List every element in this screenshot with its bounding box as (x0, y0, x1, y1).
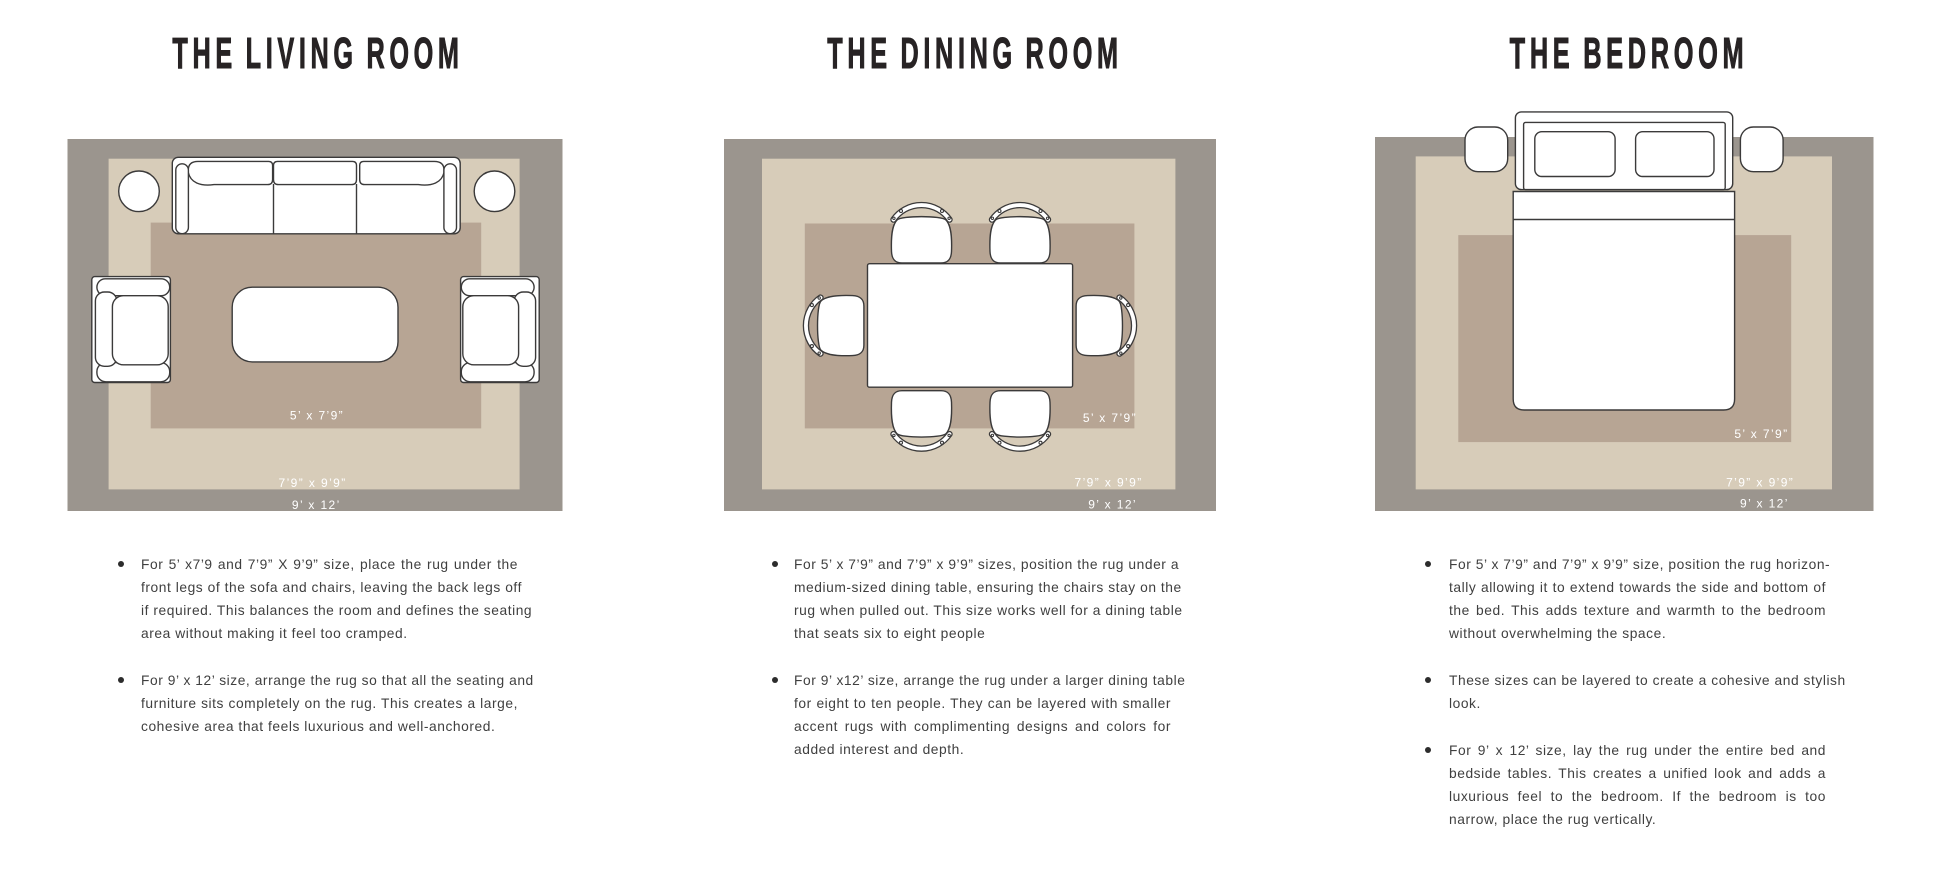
svg-text:9’ x 12’: 9’ x 12’ (1088, 497, 1137, 511)
svg-text:9’ x 12’: 9’ x 12’ (292, 498, 341, 512)
svg-text:7’9” x 9’9”: 7’9” x 9’9” (1075, 476, 1143, 490)
svg-text:5’ x 7’9”: 5’ x 7’9” (1734, 427, 1788, 441)
svg-text:5’ x 7’9”: 5’ x 7’9” (1083, 411, 1137, 425)
svg-text:7’9” x 9’9”: 7’9” x 9’9” (1726, 476, 1794, 490)
svg-text:5’ x 7’9”: 5’ x 7’9” (290, 409, 344, 423)
svg-text:7’9” x 9’9”: 7’9” x 9’9” (279, 476, 347, 490)
svg-text:9’ x 12’: 9’ x 12’ (1740, 497, 1789, 511)
